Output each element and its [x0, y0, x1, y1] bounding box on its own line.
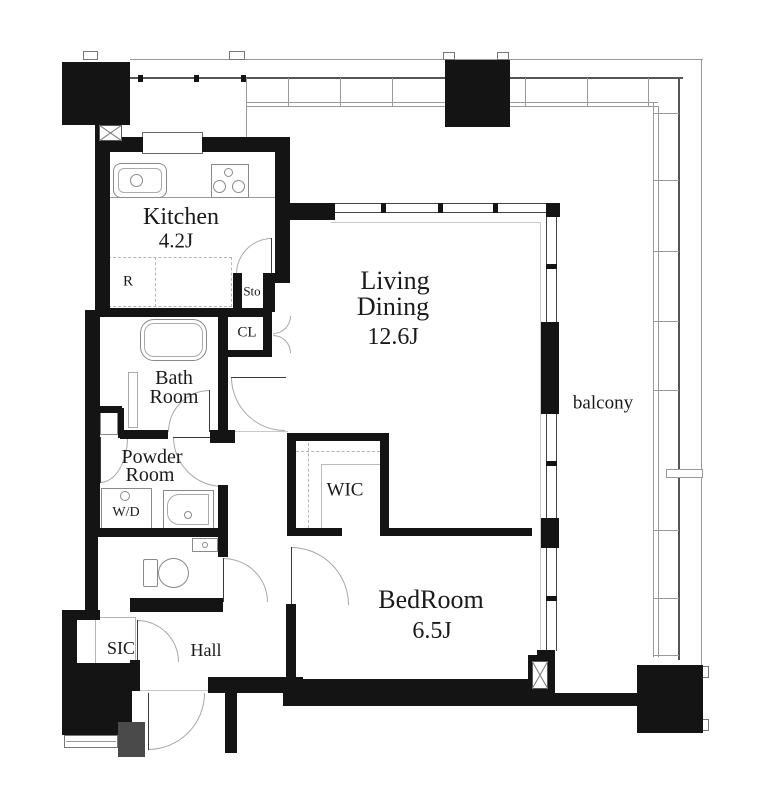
wall-segment: [202, 137, 277, 152]
right-window-strip: [546, 214, 557, 651]
wall-segment: [130, 598, 223, 612]
bedroom-door-arc: [291, 547, 349, 605]
boundary-line-right: [701, 59, 702, 665]
balcony-floor-line: [653, 102, 654, 657]
structural-column: [62, 62, 130, 125]
wall-segment: [292, 679, 537, 693]
window-post: [493, 203, 498, 213]
hall-label: Hall: [191, 641, 222, 659]
washer-faucet-icon: [120, 491, 130, 501]
wall-tab: [497, 52, 509, 60]
structural-column: [637, 665, 703, 733]
wic-shelf-line: [321, 464, 380, 465]
toilet-door-arc: [223, 558, 268, 602]
refrigerator-label: R: [123, 275, 133, 290]
wall-segment: [287, 433, 388, 441]
entrance-porch-line: [66, 741, 116, 742]
bath-label-1: Bath: [155, 368, 193, 388]
wall-segment: [546, 203, 560, 217]
wall-segment: [85, 528, 228, 537]
wall-segment: [218, 317, 228, 437]
balcony-railing-top: [130, 77, 683, 79]
wall-segment: [275, 203, 335, 220]
railing-divider: [340, 78, 341, 107]
railing-divider: [653, 598, 679, 599]
wall-segment: [283, 693, 637, 706]
wall-segment: [100, 308, 272, 317]
sink-drain-icon: [130, 174, 143, 187]
wall-segment: [120, 430, 168, 439]
kitchen-window: [142, 132, 203, 154]
bath-door-leaf: [209, 390, 210, 432]
wic-label: WIC: [327, 481, 364, 500]
railing-divider: [392, 78, 393, 107]
powder-side-door-leaf: [100, 437, 101, 483]
entrance-step: [118, 722, 145, 757]
sic-label: SIC: [107, 639, 135, 657]
balcony-partition-panel: [666, 469, 703, 478]
wic-hanger-pipe: [308, 443, 309, 528]
structural-column: [445, 60, 510, 127]
railing-divider: [653, 321, 679, 322]
railing-divider: [525, 78, 526, 107]
bathtub-inner: [144, 323, 203, 357]
railing-divider: [653, 530, 679, 531]
wall-segment: [210, 430, 235, 443]
window-post: [438, 203, 443, 213]
wall-segment: [218, 485, 228, 557]
railing-divider: [653, 113, 679, 114]
balcony-label: balcony: [573, 394, 633, 413]
living-inner-line: [540, 222, 541, 677]
living-size: 12.6J: [367, 325, 418, 349]
stove-burner-icon: [224, 168, 233, 177]
closet-bifold-arc: [273, 316, 291, 334]
storage-door-leaf: [271, 238, 272, 275]
closet-label: CL: [237, 326, 256, 341]
wall-segment: [130, 660, 140, 691]
wall-tab: [229, 51, 245, 60]
wic-hanger-pipe: [296, 451, 380, 452]
entrance-door-arc: [148, 693, 205, 750]
bath-label-2: Room: [150, 387, 199, 407]
stove-burner-icon: [213, 180, 226, 193]
bedroom-door-leaf: [291, 547, 292, 605]
storage-label: Sto: [243, 285, 260, 298]
boundary-line-top: [130, 59, 703, 60]
kitchen-label: Kitchen: [143, 205, 219, 229]
door-threshold: [228, 431, 288, 432]
wall-tab: [443, 52, 455, 60]
vanity-basin: [167, 494, 209, 525]
pipe-shaft-icon: [99, 125, 122, 141]
kitchen-size: 4.2J: [159, 231, 193, 252]
bedroom-size: 6.5J: [412, 619, 451, 643]
railing-divider: [653, 180, 679, 181]
floor-plan: Kitchen 4.2J Living Dining 12.6J Bath Ro…: [0, 0, 760, 800]
wall-segment: [225, 350, 272, 357]
wall-segment: [85, 310, 100, 530]
railing-divider: [288, 78, 289, 107]
railing-post: [194, 75, 199, 82]
railing-divider: [653, 251, 679, 252]
refrigerator-space-divider: [155, 257, 156, 307]
railing-divider: [653, 655, 679, 656]
handwash-drain-icon: [202, 542, 208, 548]
entrance-threshold: [140, 690, 208, 691]
wall-segment: [118, 408, 124, 438]
window-post: [546, 461, 557, 466]
balcony-floor-line: [658, 106, 659, 657]
pipe-shaft-icon: [532, 661, 548, 689]
toilet-bowl: [158, 558, 189, 588]
sic-door-leaf: [137, 620, 138, 662]
railing-post: [241, 75, 246, 82]
living-inner-line: [331, 222, 541, 223]
wall-segment: [286, 604, 296, 680]
washer-dryer-label: W/D: [112, 506, 139, 520]
sic-door-arc: [137, 620, 179, 662]
entrance-door-leaf: [148, 693, 149, 750]
bath-niche: [100, 412, 118, 435]
wall-segment: [62, 610, 100, 620]
wic-shelf-line: [321, 464, 322, 528]
wall-segment: [388, 528, 532, 536]
powder-label-2: Room: [126, 465, 175, 485]
wall-segment: [233, 273, 242, 312]
vanity-drain-icon: [184, 511, 192, 519]
wall-segment: [85, 528, 98, 612]
railing-connector: [246, 78, 247, 138]
bath-counter: [128, 372, 138, 428]
storage-door-arc: [236, 238, 272, 274]
wall-segment: [541, 518, 559, 548]
wall-segment: [541, 322, 559, 414]
railing-divider: [648, 78, 649, 107]
bedroom-label: BedRoom: [378, 587, 483, 613]
living-label-2: Dining: [357, 294, 429, 320]
wall-segment: [380, 433, 389, 536]
wall-segment: [263, 273, 275, 312]
wall-segment: [95, 125, 110, 312]
toilet-tank: [143, 559, 158, 587]
window-post: [381, 203, 386, 213]
toilet-door-leaf: [223, 558, 224, 602]
balcony-railing-right: [678, 77, 680, 660]
closet-bifold-arc: [273, 335, 291, 353]
living-hall-door-leaf: [231, 377, 286, 378]
wall-tab: [83, 51, 98, 60]
living-label-1: Living: [360, 268, 429, 294]
wall-segment: [225, 693, 237, 753]
stove-burner-icon: [232, 180, 245, 193]
living-hall-door-arc: [231, 377, 285, 431]
railing-post: [138, 75, 143, 82]
railing-divider: [653, 390, 679, 391]
railing-divider: [587, 78, 588, 107]
window-post: [546, 596, 557, 601]
wall-segment: [287, 433, 296, 536]
window-post: [546, 264, 557, 269]
wall-segment: [287, 528, 342, 536]
